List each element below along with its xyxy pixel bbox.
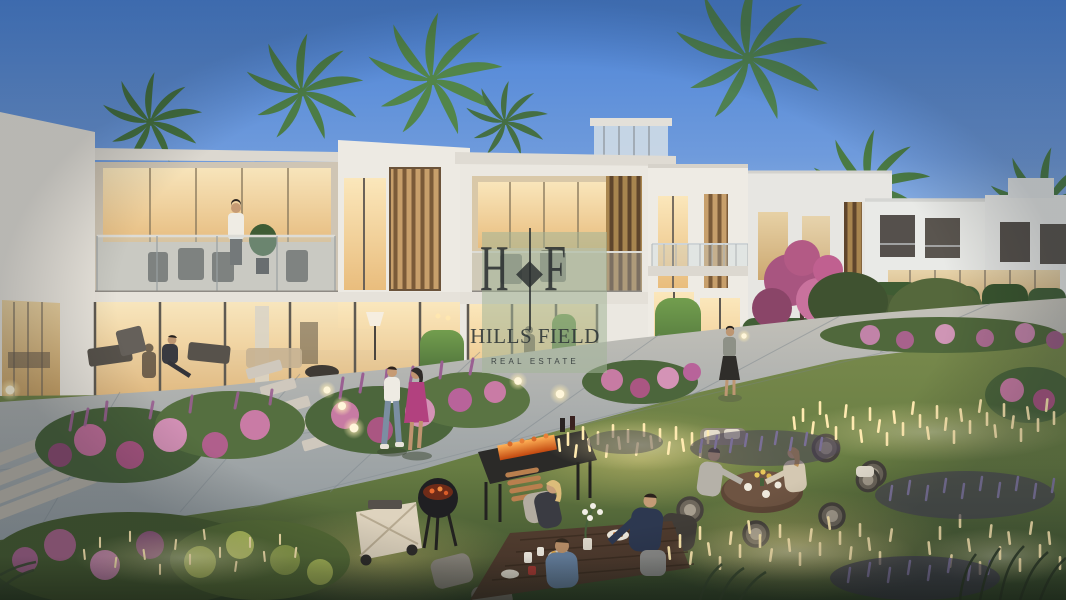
real-estate-render: H F HILLS FIELD REAL ESTATE	[0, 0, 1066, 600]
vignette	[0, 0, 1066, 600]
bottom-fade	[0, 556, 1066, 600]
scene-canvas	[0, 0, 1066, 600]
